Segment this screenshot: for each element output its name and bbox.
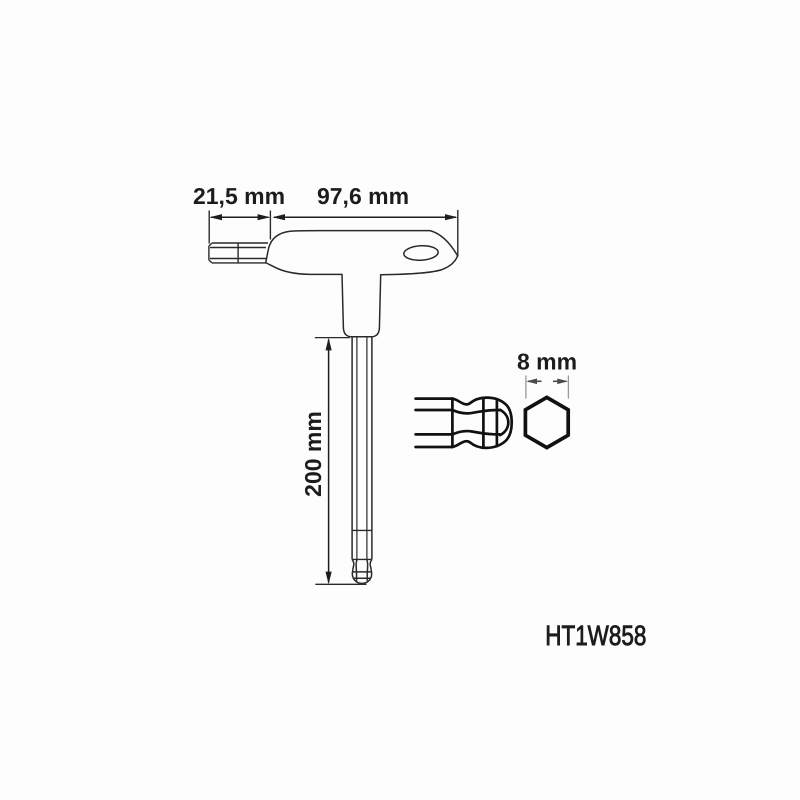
- svg-text:21,5 mm: 21,5 mm: [193, 183, 285, 209]
- svg-text:HT1W858: HT1W858: [545, 620, 646, 651]
- svg-text:8 mm: 8 mm: [517, 349, 577, 375]
- svg-text:97,6 mm: 97,6 mm: [317, 183, 409, 209]
- svg-text:200 mm: 200 mm: [300, 411, 326, 497]
